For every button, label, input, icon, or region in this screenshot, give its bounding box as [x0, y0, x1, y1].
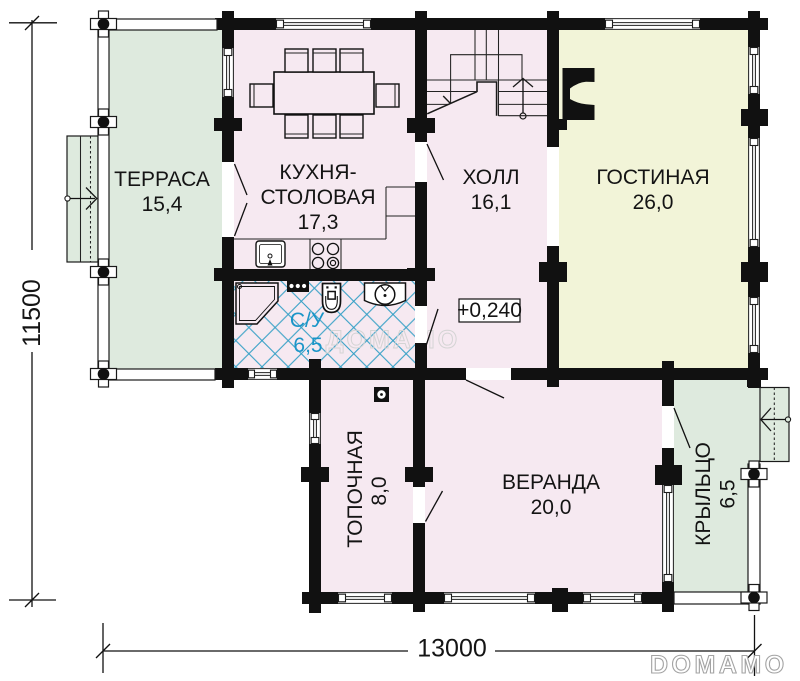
- svg-text:6,5: 6,5: [717, 479, 740, 508]
- svg-text:КРЫЛЬЦО: КРЫЛЬЦО: [692, 442, 715, 546]
- svg-text:11500: 11500: [18, 279, 46, 347]
- svg-text:8,0: 8,0: [368, 476, 391, 505]
- svg-text:26,0: 26,0: [633, 191, 674, 214]
- svg-text:С/У: С/У: [290, 309, 325, 332]
- svg-text:ДОМАМО: ДОМАМО: [326, 326, 460, 354]
- svg-text:15,4: 15,4: [142, 193, 183, 216]
- svg-text:СТОЛОВАЯ: СТОЛОВАЯ: [260, 186, 375, 209]
- svg-text:6,5: 6,5: [293, 334, 322, 357]
- svg-text:КУХНЯ-: КУХНЯ-: [279, 161, 356, 184]
- svg-text:ВЕРАНДА: ВЕРАНДА: [502, 471, 600, 494]
- svg-text:13000: 13000: [417, 635, 487, 663]
- svg-text:ТЕРРАСА: ТЕРРАСА: [114, 168, 210, 191]
- svg-text:20,0: 20,0: [531, 496, 572, 519]
- svg-text:ХОЛЛ: ХОЛЛ: [463, 166, 520, 189]
- svg-text:16,1: 16,1: [471, 191, 512, 214]
- svg-text:ТОПОЧНАЯ: ТОПОЧНАЯ: [344, 430, 367, 548]
- svg-text:+0,240: +0,240: [457, 299, 522, 322]
- svg-text:DOMAMO: DOMAMO: [650, 651, 788, 679]
- svg-text:ГОСТИНАЯ: ГОСТИНАЯ: [596, 166, 709, 189]
- svg-text:17,3: 17,3: [298, 211, 339, 234]
